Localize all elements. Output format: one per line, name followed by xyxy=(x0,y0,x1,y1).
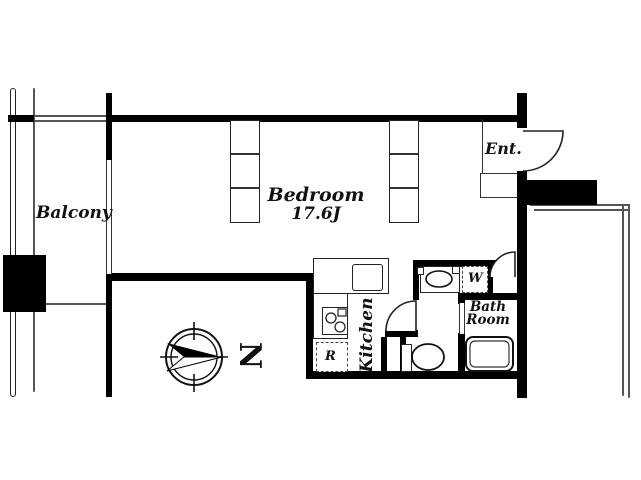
wall-left-lower xyxy=(106,273,112,397)
kitchen-stove xyxy=(322,307,348,335)
bedroom-name: Bedroom xyxy=(246,186,386,206)
entrance-step xyxy=(480,173,517,198)
pillar-closet-right-shelf-2 xyxy=(390,187,418,189)
compass-outer-circle xyxy=(166,329,222,385)
wall-bedroom-bottom xyxy=(106,273,318,281)
pillar-closet-left-shelf-1 xyxy=(231,153,259,155)
wall-kitchen-left xyxy=(306,277,313,379)
pillar-closet-right-shelf-1 xyxy=(390,153,418,155)
balcony-top-edge-line-2 xyxy=(34,120,106,122)
balcony-bottom-edge-line xyxy=(46,303,106,305)
washbasin-tab-right xyxy=(452,266,460,274)
pillar-closet-right xyxy=(389,120,419,223)
pipe-shaft-block xyxy=(527,180,597,205)
floor-plan: Balcony Bedroom 17.6J Ent. Kitchen Bath … xyxy=(0,0,641,480)
wall-right-above-door xyxy=(517,93,527,128)
compass-inner-circle xyxy=(171,334,217,380)
kitchen-sink xyxy=(352,264,383,291)
wall-washroom-left xyxy=(413,260,419,300)
wall-top xyxy=(106,115,527,122)
toilet-tank xyxy=(401,344,412,372)
wall-niche-left xyxy=(381,337,387,373)
wall-bottom xyxy=(306,371,527,379)
balcony-outer-railing xyxy=(10,88,16,397)
corridor-edge-line-v2 xyxy=(628,205,630,398)
wall-left-upper xyxy=(106,93,112,162)
plan-curves-overlay xyxy=(0,0,641,480)
compass-north-label: N xyxy=(232,342,267,369)
kitchen-label: Kitchen xyxy=(357,295,377,375)
wall-washroom-door-stub xyxy=(385,330,418,337)
compass-needle-dark-half xyxy=(167,343,222,357)
washing-machine-label: W xyxy=(468,271,483,286)
compass-needle-light-half xyxy=(167,357,222,371)
balcony-inner-rail-line xyxy=(33,88,35,392)
refrigerator-label: R xyxy=(325,349,336,364)
bathtub-inner xyxy=(470,341,509,367)
washbasin-tab-left xyxy=(417,267,424,275)
bathroom-label: Bath Room xyxy=(460,301,516,327)
bathroom-label-line2: Room xyxy=(460,314,516,327)
balcony-label: Balcony xyxy=(36,203,112,223)
entrance-label: Ent. xyxy=(485,139,522,158)
corridor-edge-line-v1 xyxy=(622,205,624,396)
bedroom-size: 17.6J xyxy=(246,206,386,224)
corridor-edge-line-h2 xyxy=(534,209,629,211)
bathtub-outer xyxy=(466,337,513,371)
toilet-bowl xyxy=(412,344,444,370)
wall-right-main xyxy=(517,171,527,398)
balcony-partition-top xyxy=(8,115,34,122)
balcony-top-edge-line-1 xyxy=(34,115,106,117)
bedroom-label: Bedroom 17.6J xyxy=(246,186,386,224)
washroom-door-arc xyxy=(386,301,416,331)
balcony-partition-block xyxy=(3,255,46,312)
entrance-door-arc xyxy=(523,131,563,171)
wall-bath-left-lower xyxy=(458,333,465,379)
